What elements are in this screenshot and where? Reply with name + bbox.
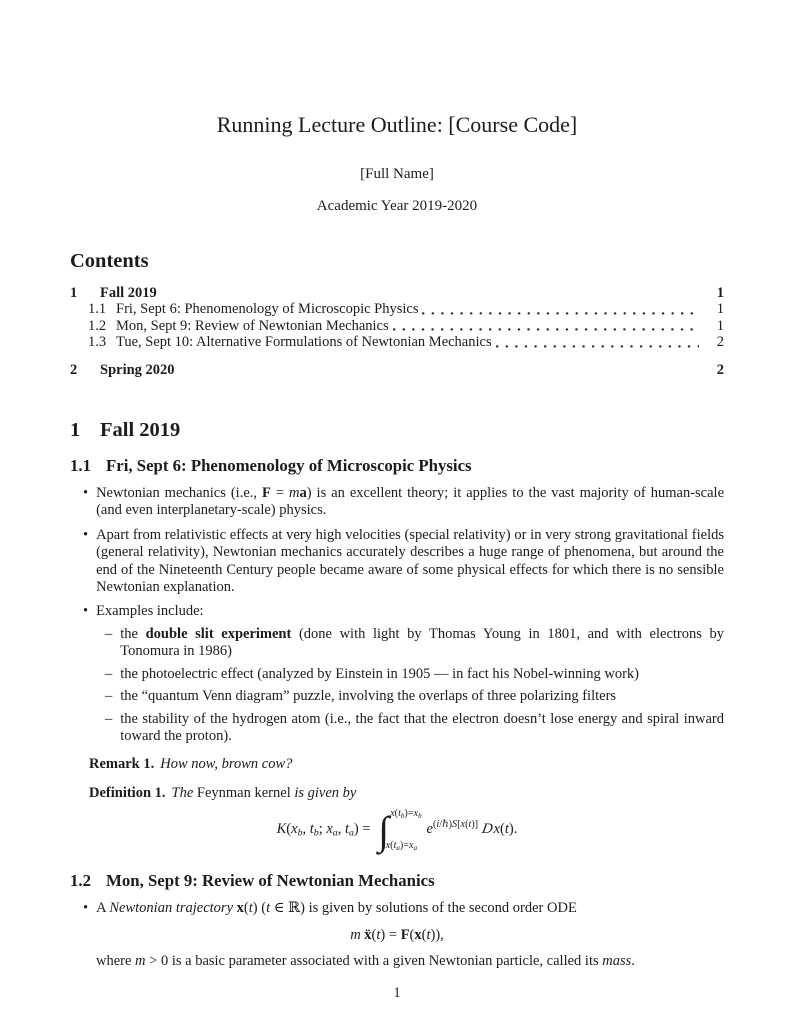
bullet-text: A Newtonian trajectory x(t) (t ∈ ℝ) is g… <box>96 900 724 917</box>
equation-lhs: K(xb, tb; xa, ta) = <box>277 821 375 837</box>
remark-label: Remark 1. <box>89 756 154 772</box>
bullet-item-newtonian-mechanics: • Newtonian mechanics (i.e., F = ma) is … <box>70 485 724 520</box>
document-title: Running Lecture Outline: [Course Code] <box>70 110 724 139</box>
toc-entry-title: Mon, Sept 9: Review of Newtonian Mechani… <box>116 318 389 334</box>
bullet-text: Apart from relativistic effects at very … <box>96 527 724 597</box>
document-author: [Full Name] <box>70 165 724 184</box>
definition-label: Definition 1. <box>89 785 166 801</box>
toc-entry-title: Fri, Sept 6: Phenomenology of Microscopi… <box>116 301 418 317</box>
toc-entry-number: 2 <box>70 362 100 378</box>
section-number: 1 <box>70 418 100 443</box>
exponential-term: e(i/ℏ)S[x(t)] <box>427 821 479 837</box>
toc-entry-number: 1.1 <box>88 301 116 317</box>
subsection-title: Mon, Sept 9: Review of Newtonian Mechani… <box>106 870 435 891</box>
sub-item-photoelectric: – the photoelectric effect (analyzed by … <box>70 666 724 683</box>
bullet-icon: • <box>70 527 96 597</box>
exponent: (i/ℏ)S[x(t)] <box>433 819 478 830</box>
remark-body: How now, brown cow? <box>160 756 292 772</box>
where-clause-paragraph: where m > 0 is a basic parameter associa… <box>70 953 724 970</box>
sub-item-text: the stability of the hydrogen atom (i.e.… <box>120 711 724 746</box>
toc-leader-dots <box>179 372 699 375</box>
section-heading-fall-2019: 1 Fall 2019 <box>70 418 724 443</box>
toc-entry-page: 1 <box>706 285 724 301</box>
dash-icon: – <box>70 626 120 661</box>
toc-entry-sept-9[interactable]: 1.2 Mon, Sept 9: Review of Newtonian Mec… <box>70 318 724 334</box>
table-of-contents: 1 Fall 2019 1 1.1 Fri, Sept 6: Phenomeno… <box>70 285 724 378</box>
toc-entry-number: 1 <box>70 285 100 301</box>
toc-leader-dots <box>422 312 699 315</box>
document-page: Running Lecture Outline: [Course Code] [… <box>0 0 794 1028</box>
subsection-heading-sept-6: 1.1 Fri, Sept 6: Phenomenology of Micros… <box>70 455 724 476</box>
document-date: Academic Year 2019-2020 <box>70 197 724 216</box>
toc-entry-number: 1.2 <box>88 318 116 334</box>
bullet-icon: • <box>70 900 96 917</box>
sub-item-quantum-venn: – the “quantum Venn diagram” puzzle, inv… <box>70 688 724 705</box>
toc-entry-page: 1 <box>706 301 724 317</box>
toc-leader-dots <box>161 295 699 298</box>
integral-construct: ∫x(tb)=xbx(ta)=xa <box>378 808 421 856</box>
document-content: Running Lecture Outline: [Course Code] [… <box>0 0 794 970</box>
toc-entry-sept-10[interactable]: 1.3 Tue, Sept 10: Alternative Formulatio… <box>70 334 724 350</box>
toc-leader-dots <box>393 328 699 331</box>
subsection-title: Fri, Sept 6: Phenomenology of Microscopi… <box>106 455 472 476</box>
toc-entry-title: Tue, Sept 10: Alternative Formulations o… <box>116 334 492 350</box>
integral-lower-limit: x(ta)=xa <box>381 841 421 853</box>
toc-entry-title: Fall 2019 <box>100 285 157 301</box>
subsection-number: 1.1 <box>70 455 106 476</box>
sub-item-text: the “quantum Venn diagram” puzzle, invol… <box>120 688 724 705</box>
bullet-icon: • <box>70 485 96 520</box>
sub-item-text: the double slit experiment (done with li… <box>120 626 724 661</box>
definition-paragraph: Definition 1.The Feynman kernel is given… <box>70 785 724 802</box>
bullet-item-relativistic-effects: • Apart from relativistic effects at ver… <box>70 527 724 597</box>
dash-icon: – <box>70 688 120 705</box>
sub-item-text: the photoelectric effect (analyzed by Ei… <box>120 666 724 683</box>
toc-entry-page: 2 <box>706 334 724 350</box>
toc-entry-sept-6[interactable]: 1.1 Fri, Sept 6: Phenomenology of Micros… <box>70 301 724 317</box>
sub-item-hydrogen-atom: – the stability of the hydrogen atom (i.… <box>70 711 724 746</box>
subsection-number: 1.2 <box>70 870 106 891</box>
sub-item-double-slit: – the double slit experiment (done with … <box>70 626 724 661</box>
dash-icon: – <box>70 666 120 683</box>
bullet-icon: • <box>70 603 96 620</box>
integral-limits: x(tb)=xbx(ta)=xa <box>389 808 421 856</box>
subsection-heading-sept-9: 1.2 Mon, Sept 9: Review of Newtonian Mec… <box>70 870 724 891</box>
toc-entry-fall-2019[interactable]: 1 Fall 2019 1 <box>70 285 724 301</box>
newton-second-law-equation: m ẍ(t) = F(x(t)), <box>70 927 724 944</box>
bullet-item-examples: • Examples include: <box>70 603 724 620</box>
toc-entry-spring-2020[interactable]: 2 Spring 2020 2 <box>70 362 724 378</box>
feynman-kernel-equation: K(xb, tb; xa, ta) = ∫x(tb)=xbx(ta)=xae(i… <box>70 806 724 854</box>
dash-icon: – <box>70 711 120 746</box>
toc-entry-number: 1.3 <box>88 334 116 350</box>
remark-paragraph: Remark 1.How now, brown cow? <box>70 756 724 773</box>
definition-body: The Feynman kernel is given by <box>172 785 357 801</box>
toc-entry-title: Spring 2020 <box>100 362 175 378</box>
toc-leader-dots <box>496 345 699 348</box>
path-integral-measure: Dx(t). <box>482 821 517 837</box>
toc-entry-page: 2 <box>706 362 724 378</box>
toc-entry-page: 1 <box>706 318 724 334</box>
bullet-text: Newtonian mechanics (i.e., F = ma) is an… <box>96 485 724 520</box>
page-number: 1 <box>0 985 794 1002</box>
bullet-item-newtonian-trajectory: • A Newtonian trajectory x(t) (t ∈ ℝ) is… <box>70 900 724 917</box>
contents-heading: Contents <box>70 249 724 274</box>
integral-upper-limit: x(tb)=xb <box>390 809 421 821</box>
bullet-text: Examples include: <box>96 603 724 620</box>
section-title: Fall 2019 <box>100 418 180 443</box>
